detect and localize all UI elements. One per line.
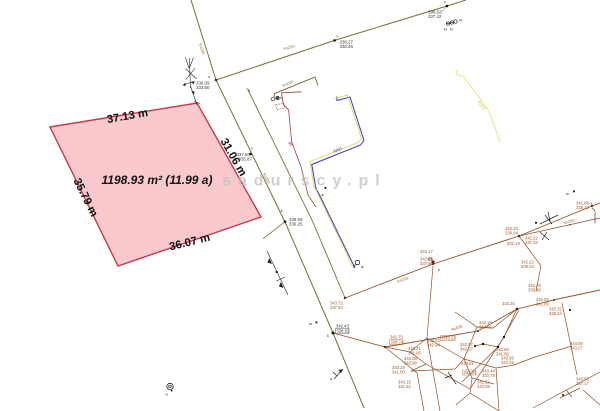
svg-text:(342.23: (342.23 [442,336,457,341]
svg-text:338.74: 338.74 [391,340,404,345]
svg-text:336.25: 336.25 [289,222,303,227]
svg-text:343.91: 343.91 [461,361,474,366]
svg-text:kl: kl [460,19,463,23]
svg-text:343.78: 343.78 [482,373,495,378]
svg-text:342.25: 342.25 [502,301,515,306]
svg-text:sadurscy.pl: sadurscy.pl [222,173,387,190]
svg-text:338.04: 338.04 [549,311,562,316]
svg-text:k: k [438,268,440,272]
svg-text:342.17: 342.17 [420,249,433,254]
svg-text:w: w [361,265,364,269]
svg-text:342.98: 342.98 [404,361,417,366]
svg-text:342.19: 342.19 [507,241,520,246]
svg-text:342.07: 342.07 [460,347,473,352]
svg-text:337.54: 337.54 [330,305,343,310]
svg-text:341.62: 341.62 [398,384,411,389]
svg-text:x: x [337,35,339,39]
svg-text:x: x [591,202,593,206]
svg-text:kl: kl [450,28,453,32]
svg-text:343.03: 343.03 [464,370,477,375]
svg-text:a: a [330,377,332,381]
svg-text:337.17: 337.17 [576,381,589,386]
svg-text:337.34: 337.34 [525,240,538,245]
svg-text:k: k [327,334,329,338]
svg-text:333.80: 333.80 [196,85,210,90]
svg-text:w: w [166,393,169,397]
svg-text:kl: kl [444,28,447,32]
svg-text:x: x [444,0,446,4]
svg-text:339.96: 339.96 [528,288,541,293]
svg-text:x: x [569,223,571,227]
svg-text:336.46: 336.46 [340,44,354,49]
svg-text:w: w [321,193,324,197]
svg-text:338.04: 338.04 [521,264,534,269]
svg-text:343.08: 343.08 [477,384,490,389]
svg-text:337.42: 337.42 [428,14,442,19]
svg-text:338.62: 338.62 [337,329,350,334]
svg-text:341.05: 341.05 [536,302,549,307]
svg-text:x: x [251,147,253,151]
svg-text:343.27: 343.27 [570,346,583,351]
svg-text:w: w [309,322,312,326]
svg-text:1198.93 m² (11.99 a): 1198.93 m² (11.99 a) [102,173,213,187]
svg-text:341.95: 341.95 [408,351,421,356]
svg-text:341.00: 341.00 [392,370,405,375]
svg-text:k: k [281,209,283,213]
svg-text:342.02: 342.02 [479,325,492,330]
svg-text:338.32: 338.32 [576,205,589,210]
svg-text:342.94: 342.94 [427,343,440,348]
svg-text:342.48: 342.48 [501,360,514,365]
svg-text:338.04: 338.04 [505,231,518,236]
svg-text:w: w [566,192,569,196]
svg-text:335.87: 335.87 [239,157,253,162]
svg-text:x: x [208,74,210,79]
